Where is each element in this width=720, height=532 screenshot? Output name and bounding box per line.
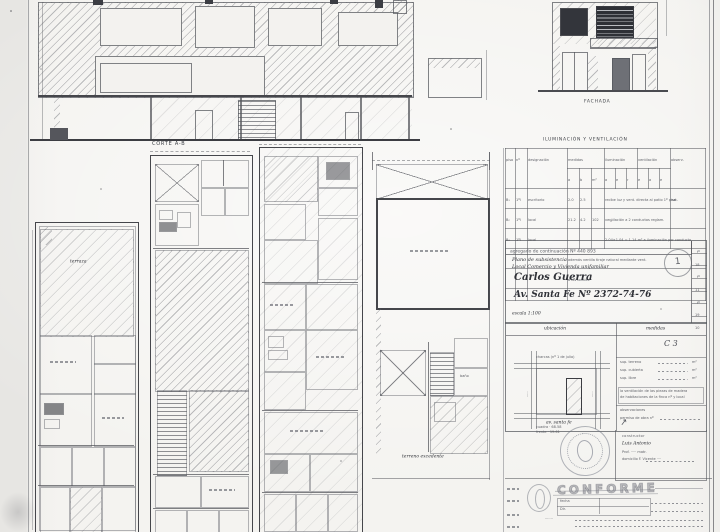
bano-label: baño xyxy=(460,374,469,378)
location-map: charcas (nº 1 de julio) av. santa fe ···… xyxy=(506,335,616,431)
patio-xbox xyxy=(380,350,426,396)
terreno-label: terreno excedente xyxy=(402,454,444,459)
cell: 21.2 xyxy=(568,209,580,229)
folio-cell: fº xyxy=(692,241,707,254)
divider xyxy=(616,405,706,406)
room xyxy=(201,476,249,508)
street-top-label: charcas (nº 1 de julio) xyxy=(536,355,574,359)
room-label-squiggle xyxy=(270,304,294,306)
footing xyxy=(50,128,68,140)
section-room xyxy=(268,8,322,46)
ubicacion-title: ubicación xyxy=(544,326,566,331)
stair xyxy=(238,100,276,140)
main-room xyxy=(376,198,490,310)
room-label-squiggle xyxy=(209,489,235,491)
street-line xyxy=(514,363,610,364)
sub-header: a xyxy=(605,169,616,189)
plan-strip-3 xyxy=(259,147,363,532)
cell: ventilación a 2 conductos reglam. xyxy=(605,209,671,229)
window-shutter xyxy=(596,6,634,38)
fixture xyxy=(326,162,350,180)
room xyxy=(318,188,358,216)
partition xyxy=(153,508,249,509)
check-arrow-mark: ↗ xyxy=(619,418,628,429)
sup-libre-label: sup. libre xyxy=(620,376,636,380)
value-leader xyxy=(658,371,688,372)
room xyxy=(219,510,249,532)
dimension-dash xyxy=(259,144,361,145)
folio-cell: 19 xyxy=(692,304,707,317)
signature-line xyxy=(655,488,703,489)
col-header: designación xyxy=(528,149,568,189)
plan-type-line1: Plano de subsistencia xyxy=(512,257,567,263)
room xyxy=(318,218,358,280)
fecha-label: fecha xyxy=(560,499,570,503)
room-label-squiggle xyxy=(102,417,124,419)
room xyxy=(264,204,306,240)
local-hatch-area xyxy=(155,250,249,392)
corte-label: CORTE A-B xyxy=(152,141,185,147)
constructor-block: constructor Luis Antonio Prof. ····· mat… xyxy=(615,430,707,481)
ground-line xyxy=(30,139,420,141)
sup-cubierta-label: sup. cubierta xyxy=(620,368,643,372)
sub-header: e xyxy=(616,169,627,189)
room xyxy=(306,284,358,330)
room xyxy=(306,330,358,390)
margin-mark xyxy=(507,488,519,490)
chimney xyxy=(205,0,213,4)
facade-drawing xyxy=(538,0,668,108)
pier xyxy=(648,46,656,90)
shop-door-line xyxy=(574,52,575,90)
margin-mark xyxy=(507,514,519,516)
form-leader xyxy=(575,526,703,527)
sub-header: b xyxy=(580,169,592,189)
table-title: ILUMINACIÓN Y VENTILACIÓN xyxy=(543,137,628,142)
partition xyxy=(262,282,358,283)
section-room xyxy=(195,6,255,48)
fixture xyxy=(159,210,173,220)
side-opening xyxy=(632,54,646,92)
cell: 2.5 xyxy=(580,189,592,209)
col-header: observ. xyxy=(671,149,706,189)
shop-opening xyxy=(562,52,588,92)
room xyxy=(264,372,306,410)
fixture xyxy=(159,222,177,232)
annex-roof xyxy=(428,58,480,68)
value-leader xyxy=(658,363,688,364)
emblem-core xyxy=(535,489,545,509)
group-header: medidas xyxy=(568,149,605,169)
measures-panel: C 3 sup. terreno m² sup. cubierta m² sup… xyxy=(616,335,706,431)
plan-type-line2: Local Comercio y Vivienda unifamiliar xyxy=(512,264,609,270)
sub-header: r xyxy=(627,169,638,189)
fixture xyxy=(270,460,288,474)
chimney xyxy=(93,0,103,5)
room xyxy=(40,487,70,532)
room-label-squiggle xyxy=(316,356,344,358)
sub-header: e xyxy=(638,169,649,189)
corridor-wall xyxy=(428,342,429,452)
room xyxy=(201,188,225,216)
chimney xyxy=(330,0,338,4)
lux-vent-table: piso nº designación medidas iluminación … xyxy=(505,148,705,236)
lot-boundary xyxy=(372,478,490,479)
table-group-row: piso nº designación medidas iluminación … xyxy=(506,149,706,169)
room xyxy=(70,487,102,532)
value-leader xyxy=(658,379,688,380)
location-measures-block: ubicación medidas charcas (nº 1 de julio… xyxy=(505,322,707,432)
door xyxy=(345,112,359,141)
partition xyxy=(262,492,358,493)
cell xyxy=(671,209,706,229)
partition xyxy=(153,474,249,475)
room xyxy=(94,335,136,365)
constructor-line2: Prof. ····· matr. xyxy=(622,450,647,454)
cell: escritorio xyxy=(528,189,568,209)
vent-note-1: la ventilación de las piezas de madera xyxy=(620,389,687,393)
form-divider xyxy=(557,506,649,507)
blueprint-sheet: CORTE A-B terraza xyxy=(0,0,720,532)
partition xyxy=(38,485,134,486)
cell: 1ºl xyxy=(516,189,528,209)
room xyxy=(94,363,136,395)
margin-mark xyxy=(507,526,519,528)
municipal-emblem xyxy=(527,484,551,512)
form-box xyxy=(557,498,651,516)
block-dim-1: cuadra · 68.58 xyxy=(536,425,561,429)
terraza-label: terraza xyxy=(70,259,87,264)
cell: B₁ xyxy=(506,189,516,209)
corner-smudge xyxy=(0,492,36,532)
form-leader xyxy=(575,520,703,521)
folio-cell: 18 xyxy=(692,254,707,267)
form-divider xyxy=(599,498,600,514)
form-leader xyxy=(651,503,703,504)
dimension-dash xyxy=(150,151,250,152)
sup-terreno-label: sup. terreno xyxy=(620,360,641,364)
sub-header: a xyxy=(649,169,660,189)
fixture xyxy=(434,402,456,422)
value-leader xyxy=(660,419,700,420)
room xyxy=(155,476,201,508)
table-row: B₂ 1ºl local 21.2 4.2 102 ventilación a … xyxy=(506,209,706,229)
col-header: nº xyxy=(516,149,528,189)
room xyxy=(310,454,358,492)
room xyxy=(40,447,72,487)
room xyxy=(187,510,219,532)
room-label-squiggle xyxy=(290,430,324,432)
zone-mark: C 3 xyxy=(664,339,678,348)
sub-header: e xyxy=(660,169,671,189)
cell: 4.2 xyxy=(580,209,592,229)
left-fold-line xyxy=(28,0,29,532)
fixture xyxy=(268,336,284,348)
table-row: B₁ 1ºl escritorio 2.0 2.5 recibe luz y v… xyxy=(506,189,706,209)
room xyxy=(104,447,136,487)
fixture xyxy=(44,403,64,415)
room-label-squiggle xyxy=(410,250,450,252)
fixture xyxy=(44,419,60,429)
column-divider xyxy=(503,148,504,532)
sub-header: m² xyxy=(592,169,605,189)
section-drawing-corte xyxy=(30,0,490,146)
folio-column: fº 18 fº 11 fº 19 10 xyxy=(691,241,707,323)
owner-name: Carlos Guerra xyxy=(514,272,592,283)
sheet-border-outer xyxy=(709,0,710,532)
room xyxy=(155,510,187,532)
section-room xyxy=(100,8,182,46)
dimension-dash xyxy=(372,160,490,161)
lot-footprint xyxy=(566,378,582,415)
partition xyxy=(262,410,358,411)
street-right-label: ····· xyxy=(591,391,595,397)
constructor-title: constructor xyxy=(622,434,645,438)
ground-line xyxy=(538,90,668,92)
room xyxy=(201,160,249,188)
room xyxy=(40,335,92,395)
official-seal xyxy=(557,423,613,479)
constructor-name: Luis Antonio xyxy=(622,441,651,446)
fixture xyxy=(177,212,191,228)
entry-door xyxy=(612,58,630,92)
unit: m² xyxy=(692,368,697,372)
folio-cell: fº xyxy=(692,292,707,305)
pier xyxy=(588,56,598,90)
group-header: ventilación xyxy=(638,149,671,169)
stamp-number: 1 xyxy=(674,257,681,268)
room xyxy=(454,368,488,396)
stair-core xyxy=(40,227,52,245)
room-label-squiggle xyxy=(50,361,76,363)
property-address: Av. Santa Fe Nº 2372-74-76 xyxy=(514,290,651,300)
stair-run xyxy=(430,352,454,396)
group-header: iluminación xyxy=(605,149,638,169)
terraza-area xyxy=(40,229,134,337)
partition xyxy=(223,160,224,186)
cell: 2.0 xyxy=(568,189,580,209)
form-leader xyxy=(651,511,703,512)
pier xyxy=(552,46,560,90)
parapet xyxy=(393,0,407,14)
window xyxy=(560,8,588,36)
door xyxy=(195,110,213,141)
room xyxy=(454,338,488,368)
lower-row-label: ······· xyxy=(545,517,553,521)
room xyxy=(94,393,136,447)
dir-label: Dir. xyxy=(560,507,566,511)
conforme-block: CONFORME fecha Dir. ······· xyxy=(505,478,712,532)
room xyxy=(72,447,104,487)
cell: recibe luz y vent. directa al patio 1º p… xyxy=(605,189,671,209)
section-room xyxy=(338,12,398,46)
plan-strip-4: baño terreno excedente xyxy=(372,152,490,482)
unit: m² xyxy=(692,360,697,364)
dimension-tick xyxy=(372,152,373,170)
room xyxy=(264,494,296,532)
cell: 102 xyxy=(592,209,605,229)
partition xyxy=(153,248,249,249)
room xyxy=(328,494,358,532)
cell: nat. xyxy=(671,189,706,209)
observaciones-label: observaciones xyxy=(620,408,645,412)
ground-hatch xyxy=(150,97,412,139)
medidas-title: medidas xyxy=(646,326,665,331)
cell: 1ºl xyxy=(516,209,528,229)
cell xyxy=(592,189,605,209)
fixture xyxy=(268,350,288,360)
chimney xyxy=(375,0,383,8)
dimension-line xyxy=(32,230,33,530)
plan-strip-1: terraza xyxy=(35,222,139,532)
partition xyxy=(38,445,134,446)
col-header: piso xyxy=(506,149,516,189)
room xyxy=(225,188,249,216)
room xyxy=(264,412,358,454)
title-block: agregado de continuación Nº 440 893 Plan… xyxy=(505,240,707,324)
room xyxy=(264,240,318,284)
section-inner-detail xyxy=(100,63,192,93)
lot-side-boundary xyxy=(489,152,490,480)
sub-header: a xyxy=(568,169,580,189)
stair-run xyxy=(157,390,187,476)
scale-note: escala 1:100 xyxy=(512,311,541,316)
street-left-label: ····· xyxy=(526,391,530,397)
vent-note-2: de habitaciones de la finca nº y local xyxy=(620,395,685,399)
local-hatch-area xyxy=(189,390,249,472)
title-block-header-cell: agregado de continuación Nº 440 893 xyxy=(506,241,692,255)
cell: B₂ xyxy=(506,209,516,229)
sheet-border-inner xyxy=(713,0,715,532)
folio-cell: 11 xyxy=(692,279,707,292)
fachada-label: FACHADA xyxy=(584,99,611,104)
room xyxy=(264,284,306,330)
patio-xbox xyxy=(155,164,199,202)
divider xyxy=(616,357,706,358)
folio-cell: fº xyxy=(692,266,707,279)
room xyxy=(264,156,318,202)
margin-mark xyxy=(507,500,519,502)
scan-specks xyxy=(10,10,12,12)
plan-strip-2 xyxy=(150,155,253,532)
cell: local xyxy=(528,209,568,229)
dimension-line xyxy=(486,50,487,100)
divider xyxy=(505,478,712,479)
room xyxy=(102,487,136,532)
street-line xyxy=(514,418,610,419)
azotea-xbox xyxy=(376,164,488,200)
continuation-number: agregado de continuación Nº 440 893 xyxy=(510,249,596,254)
room xyxy=(296,494,328,532)
value-leader xyxy=(646,461,696,462)
balcony-rail xyxy=(590,48,656,49)
unit: m² xyxy=(692,376,697,380)
